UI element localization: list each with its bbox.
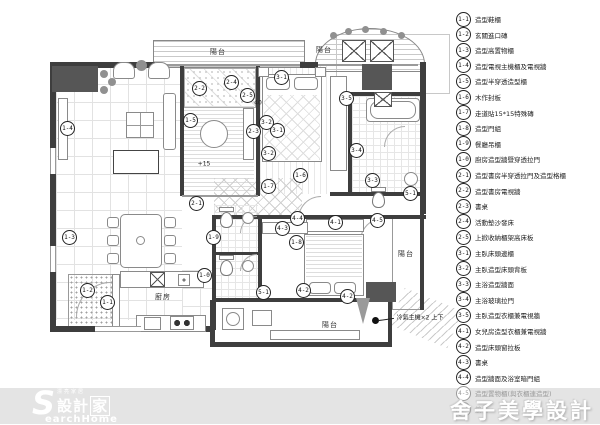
legend-item-label: 主浴玻璃拉門 [475,295,514,305]
legend-item-label: 造型鞋櫃 [475,14,501,24]
wall-study-left [180,66,184,196]
tv-wall-block [52,66,98,92]
room-label: 陽台 [316,45,332,55]
wall-right-lower [420,214,424,310]
legend-item: 2-5上掀收納櫃架高床板 [456,230,534,244]
legend-item: 4-2造型床頭窗拉板 [456,340,521,354]
legend-item-id: 1-2 [456,27,471,42]
wall-balcony-bottom [210,342,392,347]
legend-item: 1-6木作封板 [456,90,501,104]
room-label: 陽台 [398,249,414,259]
legend-item-label: 主浴造型牆面 [475,279,514,289]
bath-sink [242,212,254,224]
plan-marker: 3-5 [339,91,354,106]
legend-item-label: 造型半穿透造型櫃 [475,76,527,86]
legend-item-label: 造型床頭窗拉板 [475,342,521,352]
legend-item-id: 4-3 [456,355,471,370]
kitchen-fridge [150,272,165,287]
plan-marker: 1-6 [293,168,308,183]
legend-item-id: 3-3 [456,277,471,292]
legend-item-id: 2-2 [456,183,471,198]
legend-item-id: 2-1 [456,168,471,183]
legend-item: 1-1造型鞋櫃 [456,12,501,26]
legend-item-id: 1-6 [456,90,471,105]
plan-marker: 2-3 [246,124,261,139]
legend-item: 3-2主臥造型床頭背板 [456,262,527,276]
plan-marker: 2-5 [240,88,255,103]
legend-item-id: 3-5 [456,308,471,323]
legend-item-label: 木作封板 [475,92,501,102]
logo-brand-cn-text: 設計 [57,397,89,415]
rug [113,150,159,174]
wall-master-bath-left [348,92,352,194]
legend-item-id: 1-9 [456,136,471,151]
kitchen-stove [170,316,194,330]
legend-item-label: 女兒房造型衣櫃兼電視牆 [475,326,547,336]
plan-marker: 4-4 [290,211,305,226]
plan-marker: 4-2 [340,289,355,304]
dining-chair [164,217,176,228]
legend-item-label: 餐廳吊櫃 [475,139,501,149]
legend-item-label: 上掀收納櫃架高床板 [475,232,534,242]
dining-chair [107,253,119,264]
wall-left [50,62,56,332]
window-bottom [95,326,141,332]
room-label: 廚房 [155,292,171,302]
ac-triangle [356,298,370,324]
plan-marker: 1-1 [100,295,115,310]
logo-top: S 漂亮家居 設計家 [32,388,118,416]
shaft-box [370,40,394,62]
legend-item-id: 2-3 [456,199,471,214]
room-label: 陽台 [322,320,338,330]
pillow [294,77,318,90]
nightstand [258,67,269,77]
kitchen-sink [144,317,161,330]
plant-icon [100,70,108,78]
laundry-sink [252,310,272,326]
legend-item: 3-1主臥床頭邊櫃 [456,246,514,260]
legend-item-id: 3-1 [456,246,471,261]
study-rug [200,120,228,148]
arch-plant-icon [345,28,352,35]
legend-item-label: 主臥造型衣櫃兼電視牆 [475,310,540,320]
logo-brand-cn: 設計家 [57,395,110,416]
plan-marker: 3-2 [259,115,274,130]
dining-chair [107,217,119,228]
shaft-box [342,40,366,62]
plan-marker: 4-3 [275,221,290,236]
plan-marker: 3-3 [365,173,380,188]
wall-balcony-right [388,300,392,346]
pillow [309,282,331,294]
legend-item: 4-4造型牆面及浴室暗門組 [456,371,540,385]
logo-home-icon: 家 [90,396,110,416]
logo-s-glyph: S [32,390,55,416]
legend-item-id: 2-5 [456,230,471,245]
legend-item-label: 主臥床頭邊櫃 [475,248,514,258]
balcony-shelf [270,330,360,340]
plan-marker: 1-4 [60,121,75,136]
legend-item: 1-9餐廳吊櫃 [456,137,501,151]
plant-icon [100,86,108,94]
legend-item: 2-4活動墊沙發床 [456,215,514,229]
legend-item-label: 造型門組 [475,123,501,133]
legend-item: 1-7走道貼15*15特殊磚 [456,106,534,120]
arch-plant-icon [362,26,369,33]
logo-tagline: 漂亮家居 [57,388,110,395]
legend-item-id: 4-4 [456,370,471,385]
legend-item-id: 1-7 [456,105,471,120]
legend-item-label: 活動墊沙發床 [475,217,514,227]
legend-item-label: 書桌 [475,357,488,367]
plan-marker: 5-1 [403,186,418,201]
armchair [148,62,170,79]
legend-item: 3-5主臥造型衣櫃兼電視牆 [456,308,540,322]
girl-quilt [306,236,362,280]
window-left-1 [50,148,56,174]
shaft-box [374,92,392,107]
legend-item: 2-1造型書房半穿透拉門及造型格櫃 [456,168,566,182]
window-top [155,64,305,66]
legend-item-label: 造型高置物櫃 [475,45,514,55]
legend-item-id: 1-5 [456,74,471,89]
plan-marker: 4-5 [370,213,385,228]
plan-marker: 1-7 [261,179,276,194]
plan-marker: 3-4 [349,143,364,158]
plant-icon [136,60,147,71]
plan-marker: 2-2 [192,81,207,96]
legend-item-label: 主臥造型床頭背板 [475,264,527,274]
legend-item-label: 走道貼15*15特殊磚 [475,108,534,118]
legend-item-id: 3-2 [456,261,471,276]
sofa [163,93,176,150]
designer-watermark: 舍子美學設計 [450,395,594,425]
closet-block [366,282,396,302]
plan-marker: 1-2 [80,283,95,298]
bath-sink [242,260,254,272]
legend-item-id: 4-1 [456,324,471,339]
toilet [220,212,233,228]
legend-item: 2-3書桌 [456,199,488,213]
nightstand [315,67,326,77]
legend-item: 4-3書桌 [456,355,488,369]
arch-plant-icon [380,28,387,35]
toilet-tank [219,255,234,260]
legend-item-id: 1-1 [456,12,471,27]
legend-item-id: 1-0 [456,152,471,167]
toilet [372,192,385,208]
legend-item-id: 1-4 [456,58,471,73]
plan-note: +15 [198,161,211,168]
service-block [362,64,392,90]
legend-item: 1-5造型半穿透造型櫃 [456,74,527,88]
room-label: 陽台 [210,47,226,57]
plan-marker: 4-1 [328,215,343,230]
legend-item: 3-4主浴玻璃拉門 [456,293,514,307]
plan-marker: 1-9 [206,230,221,245]
plan-note: 冷氣主機×2 上下 [397,313,444,322]
legend-item-label: 造型電視主機櫃及電視牆 [475,61,547,71]
coffee-table [126,112,154,138]
plan-marker: 2-1 [189,196,204,211]
plan-marker: 3-2 [261,146,276,161]
logo-right: 漂亮家居 設計家 [57,388,110,416]
window-left-2 [50,246,56,272]
bath-sink [404,172,418,186]
legend-item: 1-8造型門組 [456,121,501,135]
legend-item: 1-3造型高置物櫃 [456,43,514,57]
legend-item-label: 玄關進口磚 [475,30,508,40]
legend-item-label: 造型書房電視牆 [475,186,521,196]
searchhome-logo: S 漂亮家居 設計家 earchHome [32,388,118,425]
kitchen-appliance [178,274,190,286]
legend-item-id: 1-8 [456,121,471,136]
plan-marker: 1-0 [197,268,212,283]
plan-marker: 3-1 [274,70,289,85]
legend-item-id: 4-2 [456,339,471,354]
legend-item: 4-1女兒房造型衣櫃兼電視牆 [456,324,547,338]
legend-item-id: 1-3 [456,43,471,58]
plan-marker: 1-3 [62,230,77,245]
legend-item: 1-2玄關進口磚 [456,28,508,42]
legend-item: 2-2造型書房電視牆 [456,184,521,198]
legend-item: 1-0廚房造型牆暨穿透拉門 [456,152,540,166]
toilet-tank [219,207,234,212]
logo-brand-en: earchHome [45,414,118,425]
legend-item: 1-4造型電視主機櫃及電視牆 [456,59,547,73]
dining-chair [164,235,176,246]
legend-item: 3-3主浴造型牆面 [456,277,514,291]
plan-marker: 5-1 [256,285,271,300]
legend-item-label: 造型書房半穿透拉門及造型格櫃 [475,170,566,180]
arch-plant-icon [398,32,405,39]
legend-item-id: 2-4 [456,214,471,229]
toilet [220,260,233,276]
plan-marker: 1-5 [183,113,198,128]
table-item [136,236,145,245]
legend-item-id: 3-4 [456,292,471,307]
plan-marker: 2-4 [224,75,239,90]
plant-icon [108,78,116,86]
dining-chair [107,235,119,246]
dining-chair [164,253,176,264]
legend-item-label: 廚房造型牆暨穿透拉門 [475,154,540,164]
plan-marker: 4-2 [296,283,311,298]
plan-marker: 1-8 [289,235,304,250]
legend-item-label: 造型牆面及浴室暗門組 [475,373,540,383]
washer-drum [226,312,240,326]
legend-item-label: 書桌 [475,201,488,211]
armchair [113,62,135,79]
plan-note: 40 [254,100,262,107]
arch-plant-icon [330,32,337,39]
